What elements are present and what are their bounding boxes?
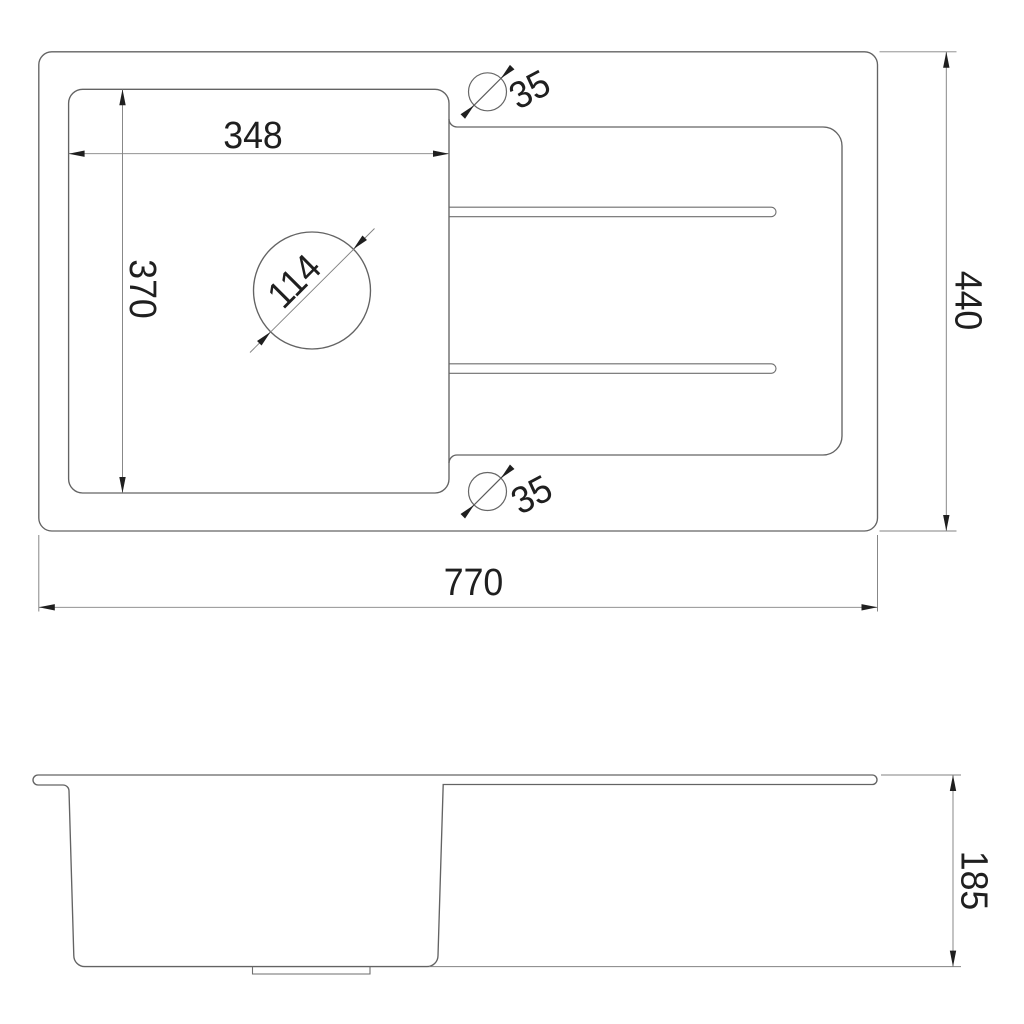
svg-text:348: 348 [223,114,283,156]
svg-text:770: 770 [444,561,504,603]
svg-text:440: 440 [947,271,989,331]
svg-text:370: 370 [122,259,164,319]
svg-text:114: 114 [259,246,329,316]
svg-text:35: 35 [504,467,559,523]
svg-text:185: 185 [953,851,995,911]
